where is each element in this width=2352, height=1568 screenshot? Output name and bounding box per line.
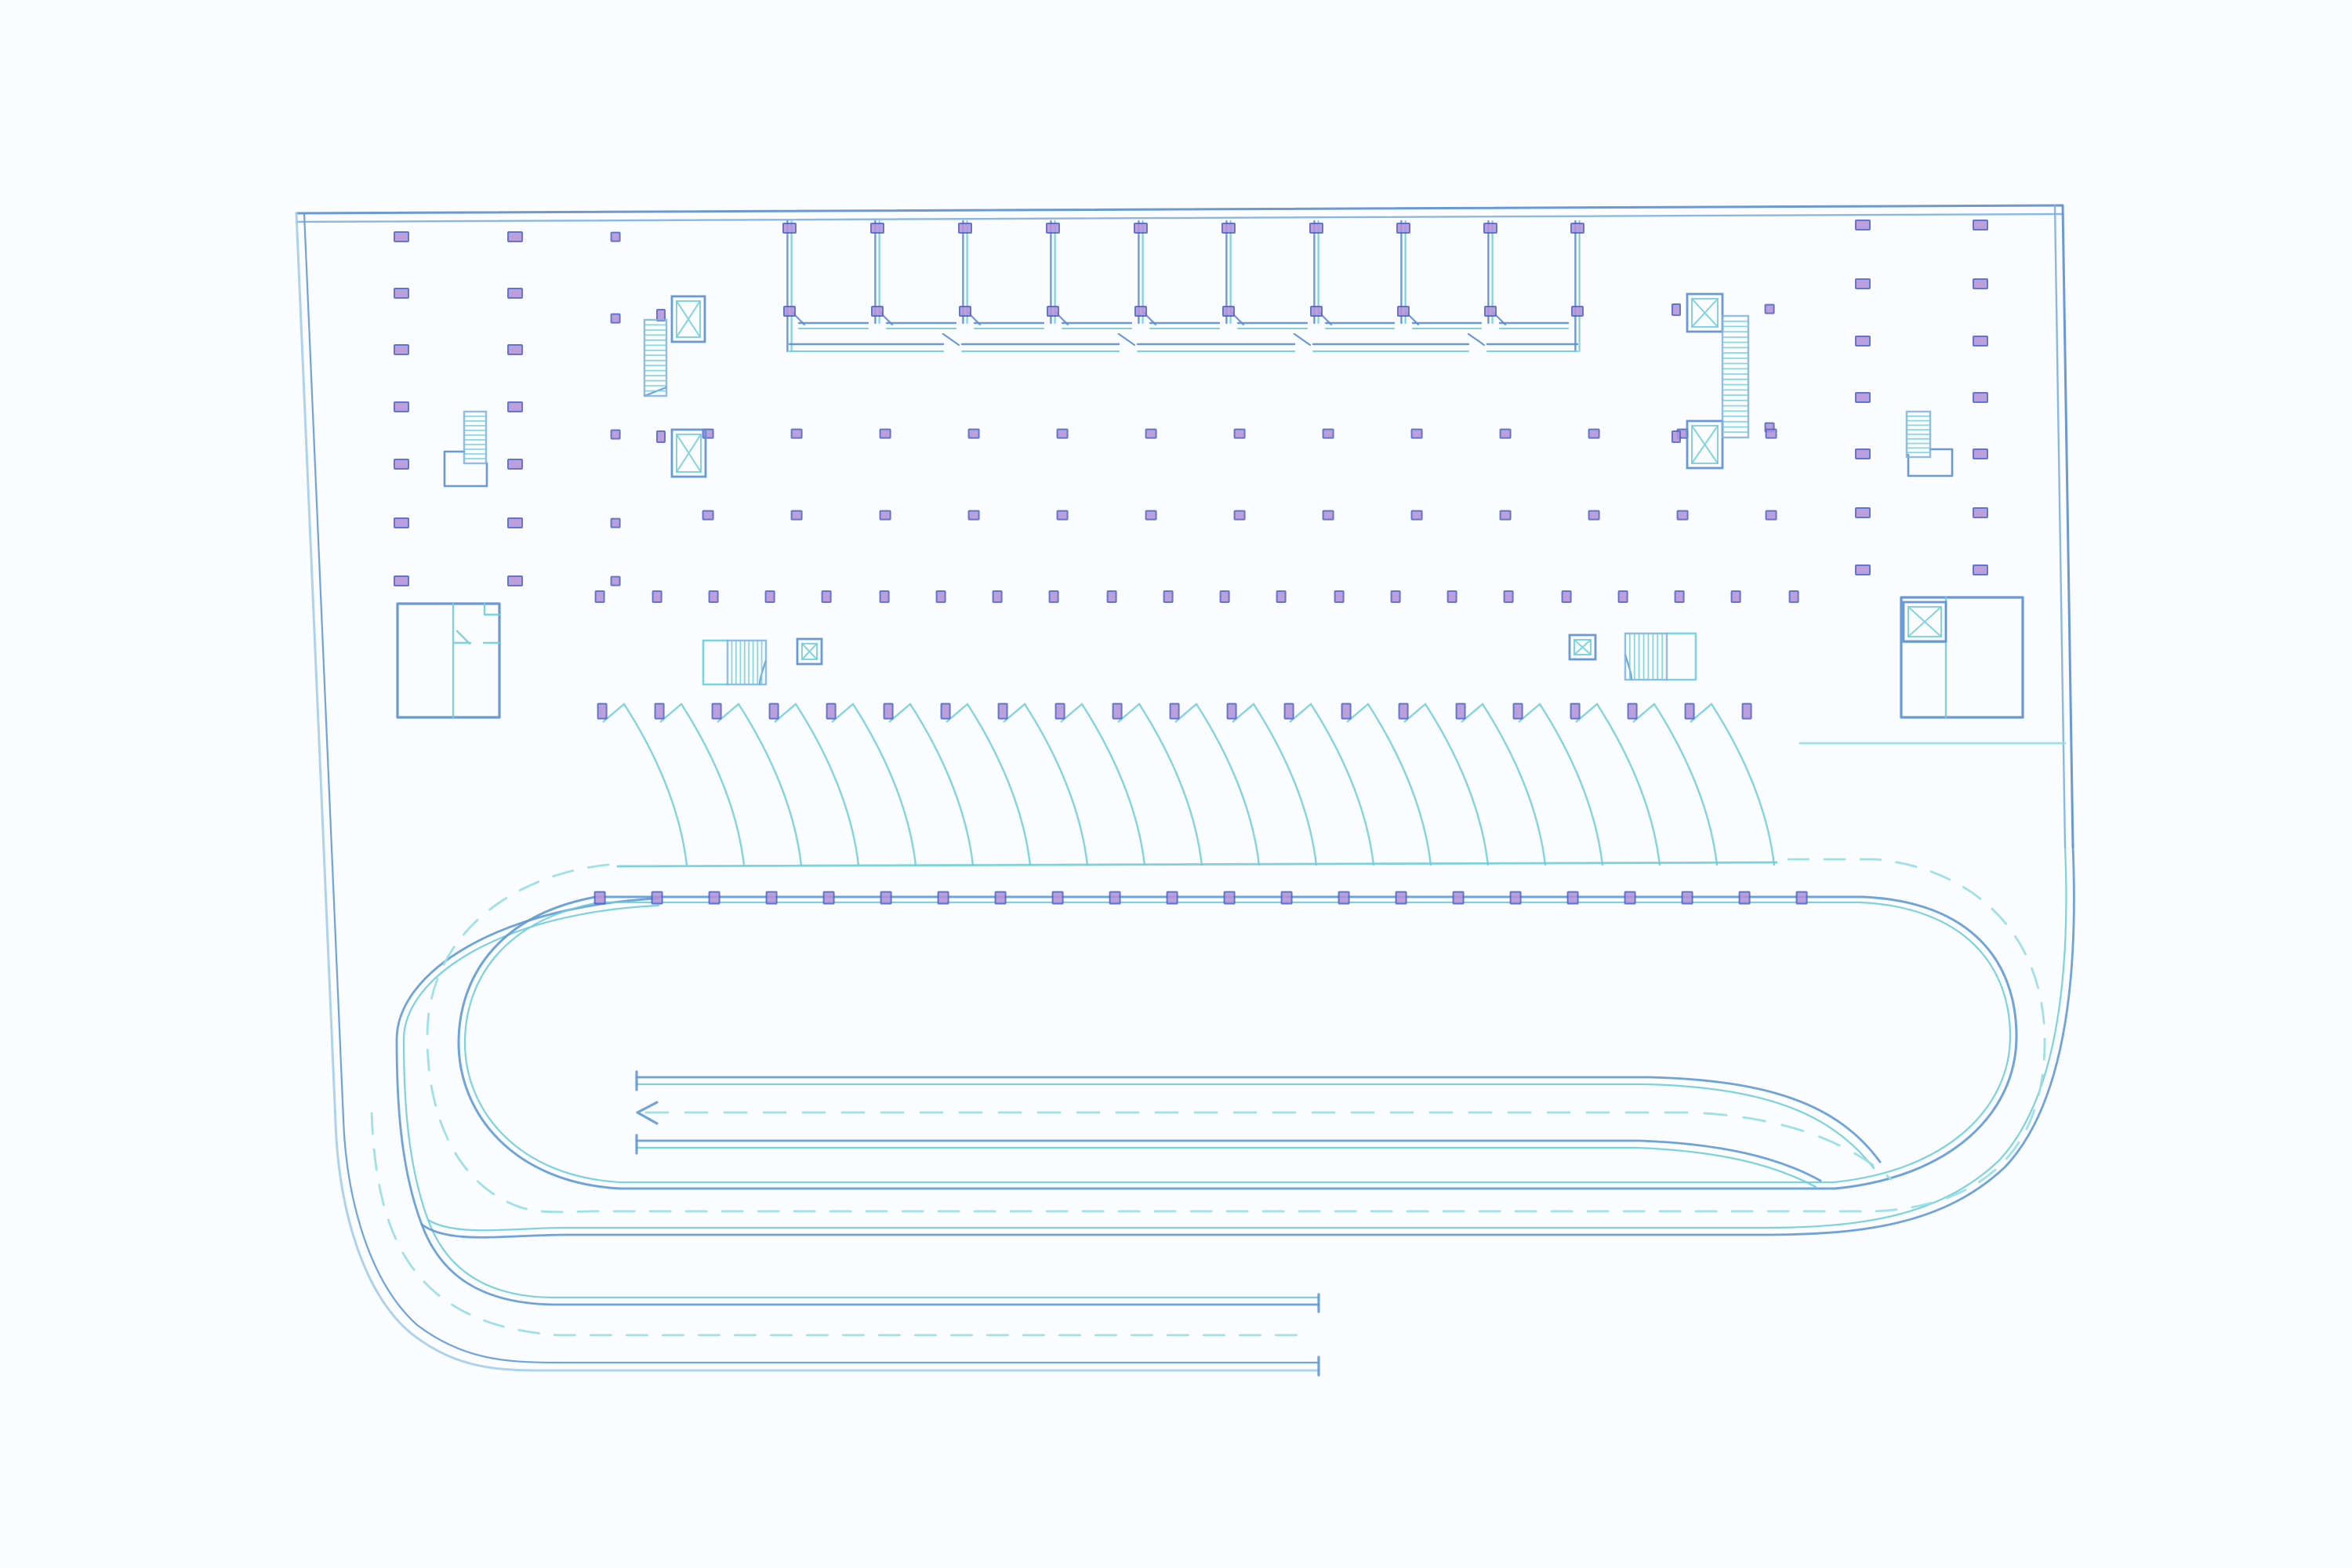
- paper-background: [0, 0, 2352, 1568]
- row-sawtooth: [598, 704, 1751, 719]
- column: [766, 591, 775, 602]
- column: [1973, 508, 1987, 517]
- column: [1568, 892, 1578, 904]
- column: [969, 511, 979, 520]
- column: [1311, 307, 1322, 316]
- column: [1589, 430, 1599, 438]
- column: [783, 223, 796, 233]
- column: [1228, 704, 1236, 719]
- column: [969, 430, 979, 438]
- column: [703, 511, 713, 520]
- column: [1134, 223, 1147, 233]
- column: [508, 576, 522, 586]
- column: [394, 345, 408, 354]
- column: [1108, 591, 1116, 602]
- column: [959, 223, 971, 233]
- column: [1110, 892, 1120, 904]
- column: [595, 892, 605, 904]
- column: [784, 307, 795, 316]
- column: [1740, 892, 1750, 904]
- column: [1146, 511, 1156, 520]
- column: [1973, 449, 1987, 459]
- column: [1766, 305, 1774, 314]
- column: [1675, 591, 1684, 602]
- column: [1973, 336, 1987, 346]
- column: [1625, 892, 1635, 904]
- column: [1682, 892, 1693, 904]
- column: [1672, 431, 1680, 442]
- column: [1973, 279, 1987, 289]
- column: [1856, 565, 1870, 575]
- column: [1678, 511, 1688, 520]
- column: [1501, 511, 1511, 520]
- column: [713, 704, 721, 719]
- column: [871, 223, 884, 233]
- column: [1323, 430, 1334, 438]
- column: [394, 459, 408, 469]
- column: [508, 459, 522, 469]
- column: [1235, 430, 1245, 438]
- column: [1672, 304, 1680, 315]
- column: [1323, 511, 1334, 520]
- column: [652, 892, 662, 904]
- column: [880, 511, 891, 520]
- column: [710, 892, 720, 904]
- column: [767, 892, 777, 904]
- column: [1589, 511, 1599, 520]
- column: [1686, 704, 1694, 719]
- column: [1053, 892, 1063, 904]
- column: [1797, 892, 1807, 904]
- column: [598, 704, 607, 719]
- column: [1856, 449, 1870, 459]
- column: [1563, 591, 1571, 602]
- column: [394, 289, 408, 298]
- column: [792, 430, 802, 438]
- column: [1571, 704, 1580, 719]
- column: [655, 704, 664, 719]
- column: [1392, 591, 1400, 602]
- column: [880, 430, 891, 438]
- column: [792, 511, 802, 520]
- column: [872, 307, 883, 316]
- column: [1050, 591, 1058, 602]
- column: [1973, 393, 1987, 402]
- column: [508, 289, 522, 298]
- column: [394, 576, 408, 586]
- column: [710, 591, 718, 602]
- column: [1511, 892, 1521, 904]
- column: [1412, 430, 1422, 438]
- column: [881, 892, 891, 904]
- column: [1397, 223, 1410, 233]
- column: [1485, 307, 1496, 316]
- column: [1058, 511, 1068, 520]
- floor-plan: Hand-drawn transit terminal level plan (…: [0, 0, 2352, 1568]
- column: [1504, 591, 1513, 602]
- column: [993, 591, 1002, 602]
- column: [1146, 430, 1156, 438]
- column: [1277, 591, 1286, 602]
- column: [1113, 704, 1122, 719]
- column: [1412, 511, 1422, 520]
- column: [394, 232, 408, 241]
- column: [1058, 430, 1068, 438]
- column: [1047, 223, 1059, 233]
- column: [653, 591, 662, 602]
- column: [1171, 704, 1179, 719]
- column: [1619, 591, 1628, 602]
- column: [612, 519, 620, 528]
- column: [999, 704, 1007, 719]
- column: [596, 591, 604, 602]
- column: [1856, 220, 1870, 230]
- column: [960, 307, 971, 316]
- column: [937, 591, 946, 602]
- column: [1571, 223, 1584, 233]
- column: [1056, 704, 1065, 719]
- column: [1335, 591, 1344, 602]
- column: [1167, 892, 1178, 904]
- column: [612, 430, 620, 439]
- column: [827, 704, 836, 719]
- column: [1225, 892, 1235, 904]
- column: [824, 892, 834, 904]
- column: [1235, 511, 1245, 520]
- column: [822, 591, 831, 602]
- column: [1135, 307, 1146, 316]
- column: [1454, 892, 1464, 904]
- column: [1047, 307, 1058, 316]
- column: [1743, 704, 1751, 719]
- column: [884, 704, 893, 719]
- column: [657, 431, 665, 442]
- floor-plan-svg: [0, 0, 2352, 1568]
- column: [1766, 430, 1777, 438]
- column: [1457, 704, 1465, 719]
- column: [612, 233, 620, 241]
- column: [612, 577, 620, 586]
- column: [1856, 508, 1870, 517]
- column: [508, 402, 522, 412]
- column: [1484, 223, 1497, 233]
- column: [1398, 307, 1409, 316]
- column: [1501, 430, 1511, 438]
- column: [508, 518, 522, 528]
- column: [996, 892, 1006, 904]
- column: [1973, 220, 1987, 230]
- column: [1223, 307, 1234, 316]
- column: [1856, 336, 1870, 346]
- column: [770, 704, 779, 719]
- column: [942, 704, 950, 719]
- column: [1448, 591, 1457, 602]
- column: [1790, 591, 1798, 602]
- column: [1973, 565, 1987, 575]
- column: [938, 892, 949, 904]
- column: [612, 314, 620, 323]
- column: [1399, 704, 1408, 719]
- column: [394, 402, 408, 412]
- column: [1628, 704, 1637, 719]
- column: [1856, 393, 1870, 402]
- column: [1339, 892, 1349, 904]
- column: [508, 232, 522, 241]
- column: [394, 518, 408, 528]
- column: [1282, 892, 1292, 904]
- column: [1732, 591, 1740, 602]
- column: [508, 345, 522, 354]
- column: [1396, 892, 1406, 904]
- column: [1572, 307, 1583, 316]
- column: [1222, 223, 1235, 233]
- column: [880, 591, 889, 602]
- column: [1766, 511, 1777, 520]
- column: [1856, 279, 1870, 289]
- column: [1342, 704, 1351, 719]
- column: [1310, 223, 1323, 233]
- column: [1514, 704, 1523, 719]
- column: [1164, 591, 1173, 602]
- column: [1221, 591, 1229, 602]
- column: [1285, 704, 1294, 719]
